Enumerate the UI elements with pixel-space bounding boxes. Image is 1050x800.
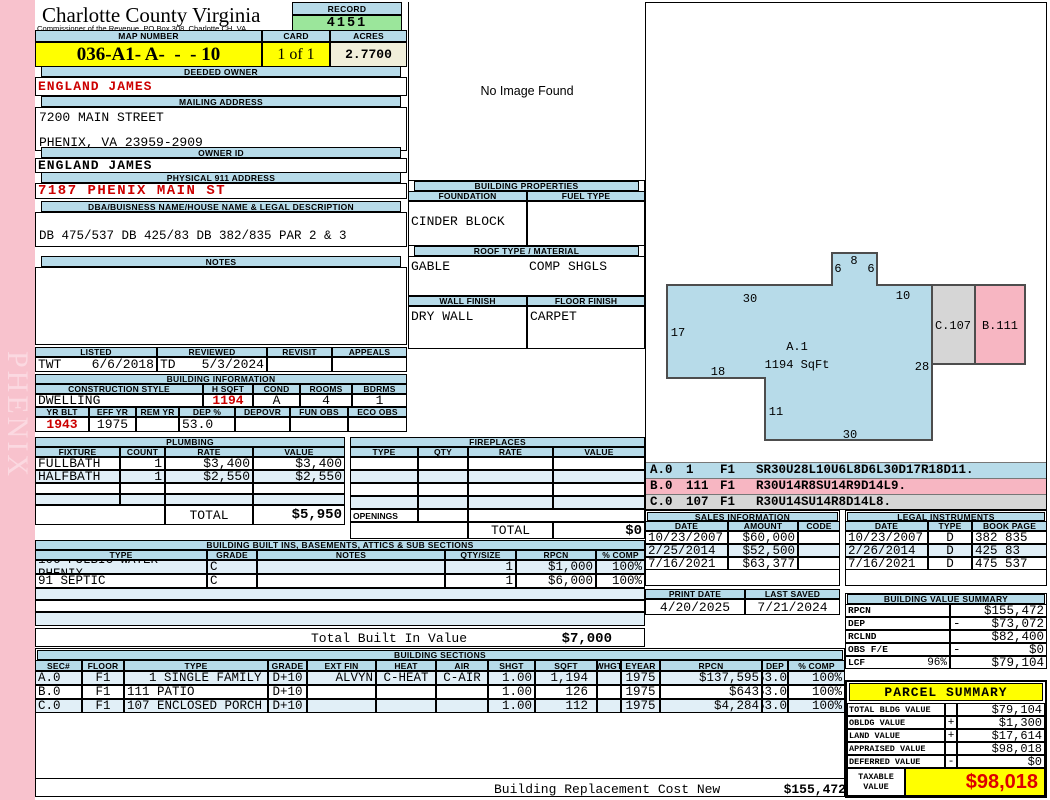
mailing-address-label: MAILING ADDRESS <box>41 96 401 107</box>
fireplaces-empty-cell <box>350 457 418 470</box>
funobs-label: FUN OBS <box>290 407 348 417</box>
yrblt-value: 1943 <box>35 417 89 432</box>
sales-date: 10/23/2007 <box>645 531 728 544</box>
mailing-line1: 7200 MAIN STREET <box>39 110 164 125</box>
floor-finish-value: CARPET <box>527 306 645 349</box>
listed-value: TWT6/6/2018 <box>35 357 157 372</box>
code-sec: A.0 <box>646 463 686 478</box>
built-ins-total-row: Total Built In Value $7,000 <box>35 628 645 647</box>
sections-comp: 100% <box>788 699 845 713</box>
plumbing-col-rate: RATE <box>165 447 253 457</box>
parcel-value: $98,018 <box>957 742 1045 755</box>
built-ins-type: 106 PULBIC WATER PHENIX <box>35 560 207 574</box>
cond-label: COND <box>253 384 300 394</box>
plumbing-row-count: 1 <box>120 470 165 483</box>
depovr-value <box>235 417 290 432</box>
fireplaces-title: FIREPLACES <box>350 437 645 447</box>
legal-type: D <box>928 557 972 570</box>
fireplaces-total-spacer <box>350 522 468 539</box>
district-vertical-label: PHENIX <box>1 330 34 500</box>
built-ins-col-qty: QTY/SIZE <box>445 550 516 560</box>
sections-comp: 100% <box>788 685 845 699</box>
sections-type: 1 SINGLE FAMILY <box>124 671 268 685</box>
roof-type-label: ROOF TYPE / MATERIAL <box>414 246 639 256</box>
sales-col-amount: AMOUNT <box>728 521 798 531</box>
fireplaces-col-rate: RATE <box>468 447 553 457</box>
plumbing-empty-cell <box>120 483 165 494</box>
plumbing-total-value: $5,950 <box>253 505 345 525</box>
deeded-owner-label: DEEDED OWNER <box>41 66 401 77</box>
sections-whgt <box>597 671 621 685</box>
code-num: 107 <box>686 495 720 509</box>
built-ins-title: BUILDING BUILT INS, BASEMENTS, ATTICS & … <box>35 540 645 550</box>
deeded-owner-value: ENGLAND JAMES <box>35 77 407 96</box>
code-floor: F1 <box>720 495 756 509</box>
rooms-value: 4 <box>300 394 352 407</box>
sections-heat <box>376 685 436 699</box>
plumbing-row-fixture: HALFBATH <box>35 470 120 483</box>
vs-label: LCF96% <box>845 656 950 669</box>
sales-code <box>798 531 840 544</box>
legal-col-type: TYPE <box>928 521 972 531</box>
legal-date: 2/26/2014 <box>845 544 928 557</box>
legal-type: D <box>928 531 972 544</box>
sections-col: RPCN <box>660 660 762 671</box>
sections-grade: D+10 <box>268 671 307 685</box>
taxable-value: $98,018 <box>905 768 1045 796</box>
fireplaces-openings-qty <box>418 509 468 522</box>
fireplaces-empty-cell <box>468 509 645 522</box>
roof-value-cell: GABLE COMP SHGLS <box>408 256 645 296</box>
foundation-value: CINDER BLOCK <box>408 201 527 246</box>
last-saved-value: 7/21/2024 <box>745 599 840 615</box>
parcel-sign: + <box>945 716 957 729</box>
sections-col: % COMP <box>788 660 845 671</box>
sales-title: SALES INFORMATION <box>647 512 838 521</box>
listed-date: 6/6/2018 <box>92 357 154 372</box>
revisit-label: REVISIT <box>267 347 332 357</box>
parcel-value: $1,300 <box>957 716 1045 729</box>
parcel-label: APPRAISED VALUE <box>847 742 945 755</box>
fireplaces-empty-cell <box>553 457 645 470</box>
reviewed-date: 5/3/2024 <box>202 357 264 372</box>
vs-label: DEP <box>845 617 950 630</box>
sections-rpcn: $643 <box>660 685 762 699</box>
last-saved-label: LAST SAVED <box>745 589 840 599</box>
sections-type: 107 ENCLOSED PORCH <box>124 699 268 713</box>
built-ins-col-notes: NOTES <box>257 550 445 560</box>
fireplaces-empty-cell <box>553 470 645 483</box>
remyr-value <box>136 417 179 432</box>
built-ins-rpcn: $1,000 <box>516 560 596 574</box>
parcel-value: $0 <box>957 755 1045 768</box>
vs-sign: - <box>953 643 961 656</box>
plumbing-col-count: COUNT <box>120 447 165 457</box>
parcel-sign <box>945 742 957 755</box>
sections-comp: 100% <box>788 671 845 685</box>
sections-sqft: 126 <box>535 685 597 699</box>
parcel-label: TOTAL BLDG VALUE <box>847 703 945 716</box>
built-ins-grade: C <box>207 574 257 588</box>
fireplaces-empty-cell <box>418 470 468 483</box>
bdrms-value: 1 <box>352 394 407 407</box>
sections-eyear: 1975 <box>621 685 660 699</box>
sections-col: SEC# <box>35 660 82 671</box>
legal-book: 425 83 <box>972 544 1047 557</box>
dim-step: 11 <box>769 405 783 419</box>
vs-amount: $82,400 <box>991 630 1044 643</box>
sales-date: 7/16/2021 <box>645 557 728 570</box>
sections-floor: F1 <box>82 685 124 699</box>
remyr-label: REM YR <box>136 407 179 417</box>
physical-address-value: 7187 PHENIX MAIN ST <box>35 183 407 199</box>
parcel-value: $17,614 <box>957 729 1045 742</box>
built-ins-total-value: $7,000 <box>517 631 612 647</box>
plumbing-row-count: 1 <box>120 457 165 470</box>
sections-col: DEP <box>762 660 788 671</box>
photo-placeholder-box: No Image Found <box>408 2 645 180</box>
legal-title: LEGAL INSTRUMENTS <box>847 512 1045 521</box>
sections-eyear: 1975 <box>621 699 660 713</box>
dim-bottom: 30 <box>843 428 857 442</box>
plumbing-empty-cell <box>35 494 120 505</box>
replacement-cost-value: $155,472 <box>756 782 846 797</box>
fireplaces-empty-cell <box>418 457 468 470</box>
building-sketch: 30 6 8 6 10 17 18 28 11 30 A.1 1194 SqFt… <box>645 2 1047 510</box>
built-ins-total-label: Total Built In Value <box>311 631 467 646</box>
parcel-summary-title: PARCEL SUMMARY <box>849 683 1043 701</box>
code-string: SR30U28L10U6L8D6L30D17R18D11. <box>756 463 974 478</box>
built-ins-qty: 1 <box>445 574 516 588</box>
code-string: R30U14SU14R8D14L8. <box>756 495 891 509</box>
sections-extfin <box>307 685 376 699</box>
legal-book: 382 835 <box>972 531 1047 544</box>
built-ins-col-rpcn: RPCN <box>516 550 596 560</box>
sections-dep: 53.0 <box>762 685 788 699</box>
built-ins-empty-row <box>35 612 645 626</box>
code-num: 111 <box>686 479 720 494</box>
sections-col: SQFT <box>535 660 597 671</box>
acres-value: 2.7700 <box>330 42 407 67</box>
sections-sqft: 112 <box>535 699 597 713</box>
fireplaces-empty-cell <box>468 496 553 509</box>
sections-whgt <box>597 685 621 699</box>
fireplaces-col-qty: QTY <box>418 447 468 457</box>
replacement-cost-row: Building Replacement Cost New $155,472 <box>36 778 844 796</box>
sections-air <box>436 685 488 699</box>
built-ins-comp: 100% <box>596 574 645 588</box>
section-a-label: A.1 <box>786 340 808 354</box>
fireplaces-total-label: TOTAL <box>468 522 553 539</box>
vs-amount: $0 <box>1029 643 1044 656</box>
fuel-type-value <box>527 201 645 246</box>
plumbing-col-fixture: FIXTURE <box>35 447 120 457</box>
fireplaces-empty-cell <box>468 457 553 470</box>
sketch-code-row-a: A.0 1 F1 SR30U28L10U6L8D6L30D17R18D11. <box>646 462 1046 478</box>
print-date-label: PRINT DATE <box>645 589 745 599</box>
sections-extfin <box>307 699 376 713</box>
built-ins-rpcn: $6,000 <box>516 574 596 588</box>
replacement-cost-label: Building Replacement Cost New <box>494 782 720 797</box>
map-number-value: 036-A1- A- - - 10 <box>35 42 262 67</box>
plumbing-empty-cell <box>253 494 345 505</box>
plumbing-empty-cell <box>165 494 253 505</box>
parcel-sign <box>945 703 957 716</box>
sections-col: TYPE <box>124 660 268 671</box>
building-sections-title: BUILDING SECTIONS <box>37 650 843 660</box>
built-ins-col-type: TYPE <box>35 550 207 560</box>
bdrms-label: BDRMS <box>352 384 407 394</box>
built-ins-qty: 1 <box>445 560 516 574</box>
code-sec: C.0 <box>646 495 686 509</box>
photo-placeholder-text: No Image Found <box>480 84 573 98</box>
code-floor: F1 <box>720 463 756 478</box>
code-string: R30U14R8SU14R9D14L9. <box>756 479 906 494</box>
dim-top-right: 10 <box>896 289 910 303</box>
sections-sec: A.0 <box>35 671 82 685</box>
fireplaces-empty-cell <box>553 496 645 509</box>
listed-label: LISTED <box>35 347 157 357</box>
property-record-card: { "district": "PHENIX", "header": { "cou… <box>0 0 1050 800</box>
sections-grade: D+10 <box>268 699 307 713</box>
vs-label: RPCN <box>845 604 950 617</box>
sections-col: EYEAR <box>621 660 660 671</box>
sections-sec: B.0 <box>35 685 82 699</box>
parcel-label: OBLDG VALUE <box>847 716 945 729</box>
sales-date: 2/25/2014 <box>645 544 728 557</box>
taxable-label-line1: TAXABLE <box>858 772 894 782</box>
floor-finish-label: FLOOR FINISH <box>527 296 645 306</box>
sections-floor: F1 <box>82 699 124 713</box>
fireplaces-empty-cell <box>350 496 418 509</box>
revisit-value <box>267 357 332 372</box>
vs-label: RCLND <box>845 630 950 643</box>
plumbing-title: PLUMBING <box>35 437 345 447</box>
sections-sqft: 1,194 <box>535 671 597 685</box>
dep-label: DEP % <box>179 407 235 417</box>
depovr-label: DEPOVR <box>235 407 290 417</box>
parcel-label: DEFERRED VALUE <box>847 755 945 768</box>
built-ins-type: 91 SEPTIC <box>35 574 207 588</box>
plumbing-empty-cell <box>253 483 345 494</box>
fireplaces-col-value: VALUE <box>553 447 645 457</box>
sections-whgt <box>597 699 621 713</box>
sketch-code-row-c: C.0 107 F1 R30U14SU14R8D14L8. <box>646 494 1046 509</box>
plumbing-empty-cell <box>120 494 165 505</box>
taxable-value-label: TAXABLE VALUE <box>847 768 905 796</box>
built-ins-grade: C <box>207 560 257 574</box>
plumbing-total-label: TOTAL <box>165 505 253 525</box>
legal-date: 10/23/2007 <box>845 531 928 544</box>
owner-id-label: OWNER ID <box>41 147 401 158</box>
sections-col: AIR <box>436 660 488 671</box>
sections-floor: F1 <box>82 671 124 685</box>
vs-value: $82,400 <box>950 630 1047 643</box>
reviewed-label: REVIEWED <box>157 347 267 357</box>
plumbing-total-spacer <box>35 505 165 525</box>
built-ins-col-grade: GRADE <box>207 550 257 560</box>
record-number: 4151 <box>292 15 402 31</box>
sales-code <box>798 544 840 557</box>
legal-description-box: DB 475/537 DB 425/83 DB 382/835 PAR 2 & … <box>35 212 407 247</box>
fuel-type-label: FUEL TYPE <box>527 191 645 201</box>
sections-sec: C.0 <box>35 699 82 713</box>
dim-bump-left: 6 <box>834 262 841 276</box>
fireplaces-empty-cell <box>553 483 645 496</box>
legal-description-value: DB 475/537 DB 425/83 DB 382/835 PAR 2 & … <box>39 229 347 243</box>
roof-type-value: GABLE <box>411 259 450 274</box>
card-label: CARD <box>262 30 330 42</box>
sales-amount: $60,000 <box>728 531 798 544</box>
notes-label: NOTES <box>41 256 401 267</box>
built-ins-notes <box>257 574 445 588</box>
plumbing-row-rate: $2,550 <box>165 470 253 483</box>
dim-bump-top: 8 <box>850 254 857 268</box>
sections-col: EXT FIN <box>307 660 376 671</box>
sections-air: C-AIR <box>436 671 488 685</box>
legal-date: 7/16/2021 <box>845 557 928 570</box>
section-c-label: C.107 <box>935 319 971 333</box>
building-properties-title: BUILDING PROPERTIES <box>414 181 639 191</box>
vs-amount: $79,104 <box>991 656 1044 669</box>
sections-rpcn: $4,284 <box>660 699 762 713</box>
funobs-value <box>290 417 348 432</box>
vs-value: -$0 <box>950 643 1047 656</box>
appeals-label: APPEALS <box>332 347 407 357</box>
sales-amount: $63,377 <box>728 557 798 570</box>
vs-label-text: LCF <box>848 657 865 668</box>
dim-bump-right: 6 <box>867 262 874 276</box>
map-number-label: MAP NUMBER <box>35 30 262 42</box>
built-ins-empty-row <box>35 588 645 600</box>
code-num: 1 <box>686 463 720 478</box>
sections-dep: 53.0 <box>762 671 788 685</box>
appeals-value <box>332 357 407 372</box>
effyr-value: 1975 <box>89 417 136 432</box>
built-ins-col-comp: % COMP <box>596 550 645 560</box>
dim-right: 28 <box>915 360 929 374</box>
vs-amount: $73,072 <box>991 617 1044 630</box>
sections-col: WHGT <box>597 660 621 671</box>
sales-code <box>798 557 840 570</box>
parcel-sign: + <box>945 729 957 742</box>
card-value: 1 of 1 <box>262 42 330 67</box>
sections-shgt: 1.00 <box>488 671 535 685</box>
fireplaces-empty-cell <box>418 483 468 496</box>
vs-value: $79,104 <box>950 656 1047 669</box>
ecoobs-label: ECO OBS <box>348 407 407 417</box>
wall-finish-label: WALL FINISH <box>408 296 527 306</box>
fireplaces-empty-cell <box>418 496 468 509</box>
sections-col: HEAT <box>376 660 436 671</box>
legal-type: D <box>928 544 972 557</box>
plumbing-row-rate: $3,400 <box>165 457 253 470</box>
fireplaces-openings-label: OPENINGS <box>350 509 418 522</box>
code-floor: F1 <box>720 479 756 494</box>
plumbing-row-value: $2,550 <box>253 470 345 483</box>
sections-shgt: 1.00 <box>488 699 535 713</box>
plumbing-empty-cell <box>35 483 120 494</box>
value-summary-title: BUILDING VALUE SUMMARY <box>847 594 1045 604</box>
vs-value: $155,472 <box>950 604 1047 617</box>
vs-amount: $155,472 <box>984 604 1044 617</box>
building-information-title: BUILDING INFORMATION <box>35 374 407 384</box>
sections-heat: C-HEAT <box>376 671 436 685</box>
print-date-value: 4/20/2025 <box>645 599 745 615</box>
sales-col-date: DATE <box>645 521 728 531</box>
built-ins-comp: 100% <box>596 560 645 574</box>
fireplaces-empty-cell <box>350 470 418 483</box>
sections-grade: D+10 <box>268 685 307 699</box>
sales-col-code: CODE <box>798 521 840 531</box>
sections-heat <box>376 699 436 713</box>
vs-value: -$73,072 <box>950 617 1047 630</box>
record-label: RECORD <box>292 2 402 15</box>
sections-eyear: 1975 <box>621 671 660 685</box>
dim-left: 17 <box>671 326 685 340</box>
vs-label-pct: 96% <box>927 657 947 669</box>
legal-col-book: BOOK PAGE <box>972 521 1047 531</box>
fireplaces-col-type: TYPE <box>350 447 418 457</box>
fireplaces-empty-cell <box>468 470 553 483</box>
cond-value: A <box>253 394 300 407</box>
fireplaces-empty-cell <box>468 483 553 496</box>
physical-address-label: PHYSICAL 911 ADDRESS <box>41 172 401 183</box>
dep-value: 53.0 <box>179 417 235 432</box>
code-sec: B.0 <box>646 479 686 494</box>
hsqft-value: 1194 <box>203 394 253 407</box>
ecoobs-value <box>348 417 407 432</box>
construction-style-label: CONSTRUCTION STYLE <box>35 384 203 394</box>
sections-dep: 53.0 <box>762 699 788 713</box>
sections-rpcn: $137,595 <box>660 671 762 685</box>
legal-description-label: DBA/BUISNESS NAME/HOUSE NAME & LEGAL DES… <box>41 201 401 212</box>
dim-top: 30 <box>743 292 757 306</box>
plumbing-col-value: VALUE <box>253 447 345 457</box>
sections-col: SHGT <box>488 660 535 671</box>
built-ins-notes <box>257 560 445 574</box>
taxable-label-line2: VALUE <box>863 782 889 792</box>
listed-by: TWT <box>38 357 61 372</box>
owner-id-value: ENGLAND JAMES <box>35 158 407 173</box>
hsqft-label: H SQFT <box>203 384 253 394</box>
fireplaces-total-value: $0 <box>553 522 645 539</box>
rooms-label: ROOMS <box>300 384 352 394</box>
vs-label: OBS F/E <box>845 643 950 656</box>
legal-col-date: DATE <box>845 521 928 531</box>
section-a-sqft: 1194 SqFt <box>765 358 830 372</box>
notes-box <box>35 267 407 345</box>
plumbing-row-value: $3,400 <box>253 457 345 470</box>
reviewed-value: TD5/3/2024 <box>157 357 267 372</box>
wall-finish-value: DRY WALL <box>408 306 527 349</box>
sketch-code-row-b: B.0 111 F1 R30U14R8SU14R9D14L9. <box>646 478 1046 494</box>
dim-notch: 18 <box>711 365 725 379</box>
parcel-value: $79,104 <box>957 703 1045 716</box>
sales-amount: $52,500 <box>728 544 798 557</box>
built-ins-empty-row <box>35 600 645 612</box>
reviewed-by: TD <box>160 357 176 372</box>
construction-style-value: DWELLING <box>35 394 203 407</box>
sections-air <box>436 699 488 713</box>
vs-sign: - <box>953 617 961 630</box>
foundation-label: FOUNDATION <box>408 191 527 201</box>
sections-type: 111 PATIO <box>124 685 268 699</box>
plumbing-empty-cell <box>165 483 253 494</box>
fireplaces-empty-cell <box>350 483 418 496</box>
parcel-sign: - <box>945 755 957 768</box>
legal-book: 475 537 <box>972 557 1047 570</box>
